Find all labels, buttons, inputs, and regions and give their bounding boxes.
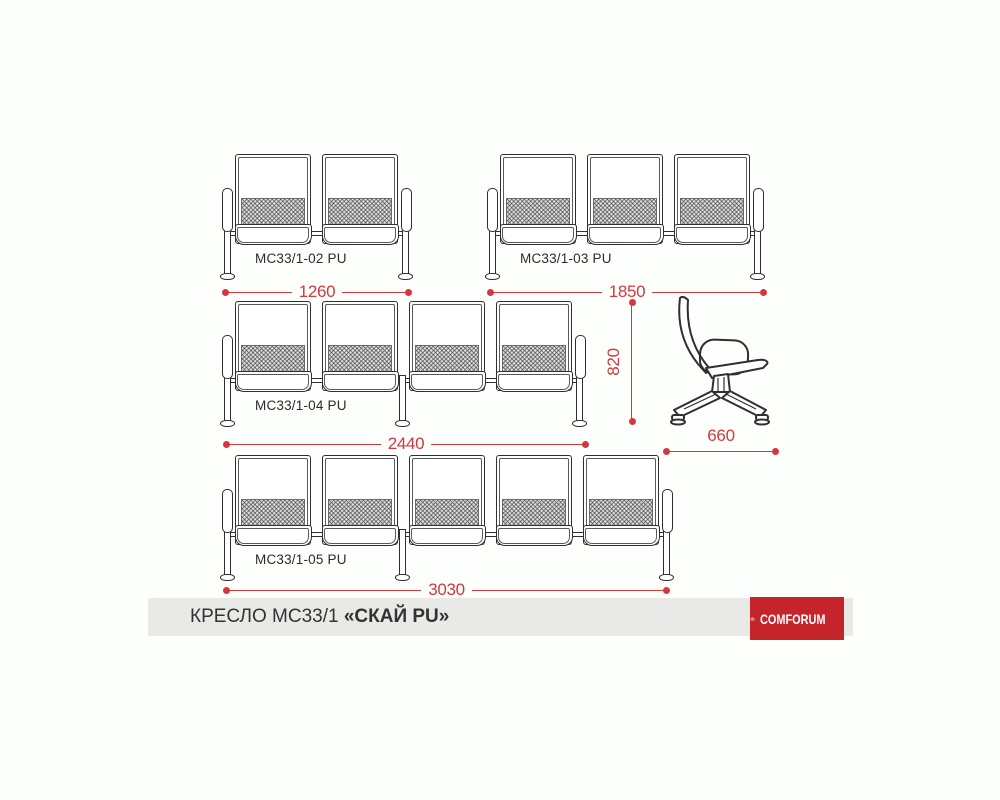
seat-front-view [496,301,572,391]
seat-front-view [322,301,398,391]
dimension-line [472,590,663,591]
bench-leg [220,529,236,583]
seat-front-view [322,455,398,545]
seat-front-view [409,455,485,545]
seat-cushion [322,224,399,245]
seat-cushion-inner-line [585,528,657,544]
dimension-endpoint-dot [629,418,636,425]
right-armrest-end [401,188,412,232]
dimension-value: 1850 [602,283,653,300]
footer-title-bar: КРЕСЛО МС33/1 «СКАЙ PU» [148,598,853,636]
seat-cushion-inner-line [324,528,396,544]
dimension-endpoint-dot [772,448,779,455]
seat-mesh-band [680,198,744,226]
seat-front-view [235,455,311,545]
seat-front-view [496,455,572,545]
bench-leg-foot [750,273,765,280]
left-armrest-end [222,188,233,232]
seat-cushion-inner-line [411,374,483,390]
seat-cushion [496,525,573,546]
seat-mesh-band [589,499,653,527]
dimension-line [494,292,602,293]
seat-mesh-band [241,345,305,373]
bench-leg-post [399,529,406,577]
dimension-value: 2440 [381,435,432,452]
dimension-value: 1260 [292,283,343,300]
bench-leg-post [224,529,231,577]
bench-leg [220,228,236,282]
seat-front-view [583,455,659,545]
seat-cushion-inner-line [324,374,396,390]
seat-front-view [235,154,311,244]
bench-leg [220,375,236,429]
product-title-accent: «СКАЙ PU» [344,606,450,627]
bench-leg-foot [659,574,674,581]
left-armrest-end [487,188,498,232]
seat-front-view [674,154,750,244]
dimension-endpoint-dot [582,441,589,448]
bench-3-seater-drawing: MC33/1-03 PU [487,154,764,284]
bench-leg-post [224,375,231,423]
seat-cushion-inner-line [237,227,309,243]
chair-right-foot-base [755,420,769,425]
dimension-endpoint-dot [663,448,670,455]
bench-model-label: MC33/1-03 PU [520,251,612,266]
dimension-endpoint-dot [487,289,494,296]
bench-leg [572,375,588,429]
brand-logo: COMFORUM [750,597,844,640]
bench-leg-foot [395,574,410,581]
chair-backrest [679,297,710,373]
dimension-value: 820 [604,348,624,375]
chair-left-foot-base [671,420,685,425]
seat-cushion [674,224,751,245]
seat-cushion-inner-line [411,528,483,544]
chair-side-view-drawing [664,296,776,428]
dimension-line-row [663,448,779,455]
dimension-line [652,292,760,293]
dimension-endpoint-dot [223,587,230,594]
bench-leg-post [399,375,406,423]
dimension-line [631,302,632,422]
seat-cushion-inner-line [589,227,661,243]
seat-mesh-band [328,499,392,527]
left-armrest-end [222,335,233,379]
bench-2-seater-drawing: MC33/1-02 PU [222,154,412,284]
bench-leg-post [576,375,583,423]
right-armrest-end [575,335,586,379]
bench-model-label: MC33/1-05 PU [255,552,347,567]
bench-leg [398,228,414,282]
dimension-line [230,590,421,591]
seat-cushion-inner-line [676,227,748,243]
dimension-endpoint-dot [222,289,229,296]
comforum-arch-icon [750,610,755,628]
right-armrest-end [662,489,673,533]
dimension-width-4-seater: 2440 [223,435,589,453]
seat-cushion-inner-line [237,528,309,544]
bench-5-seater-drawing: MC33/1-05 PU [222,455,673,585]
seat-front-view [500,154,576,244]
seat-mesh-band [502,499,566,527]
bench-leg [659,529,675,583]
product-title-text: КРЕСЛО МС33/1 [190,606,339,627]
seat-cushion [322,371,399,392]
bench-leg-foot [220,273,235,280]
seat-cushion-inner-line [324,227,396,243]
seat-front-view [322,154,398,244]
bench-leg-foot [485,273,500,280]
bench-leg-foot [398,273,413,280]
seat-cushion [235,371,312,392]
dimension-line [431,444,582,445]
seat-front-view [587,154,663,244]
seat-cushion [409,525,486,546]
dimension-value: 3030 [421,581,472,598]
seat-mesh-band [593,198,657,226]
seat-cushion [235,525,312,546]
seat-front-view [409,301,485,391]
dimension-depth-side-view: 660 [663,427,779,455]
seat-cushion [496,371,573,392]
seat-mesh-band [328,198,392,226]
seat-cushion-inner-line [498,374,570,390]
product-title: КРЕСЛО МС33/1 «СКАЙ PU» [190,598,449,636]
seat-cushion [587,224,664,245]
dimension-width-2-seater: 1260 [222,283,412,301]
dimension-endpoint-dot [760,289,767,296]
bench-model-label: MC33/1-04 PU [255,398,347,413]
dimension-line [342,292,405,293]
bench-leg-foot [220,574,235,581]
seat-mesh-band [415,345,479,373]
dimension-endpoint-dot [405,289,412,296]
right-armrest-end [753,188,764,232]
bench-4-seater-drawing: MC33/1-04 PU [222,301,586,431]
dimension-value: 660 [707,427,734,444]
seat-cushion [235,224,312,245]
left-armrest-end [222,489,233,533]
dimension-endpoint-dot [223,441,230,448]
seat-cushion-inner-line [502,227,574,243]
seat-mesh-band [328,345,392,373]
bench-leg-post [663,529,670,577]
seat-cushion-inner-line [498,528,570,544]
seat-mesh-band [241,499,305,527]
seat-cushion [322,525,399,546]
brand-name: COMFORUM [760,611,826,627]
bench-leg-foot [220,420,235,427]
seat-mesh-band [241,198,305,226]
bench-leg-post [754,228,761,276]
dimension-line [230,444,381,445]
bench-leg-foot [395,420,410,427]
dimension-width-5-seater: 3030 [223,581,670,599]
bench-model-label: MC33/1-02 PU [255,251,347,266]
seat-cushion-inner-line [237,374,309,390]
dimension-endpoint-dot [663,587,670,594]
bench-leg [485,228,501,282]
seat-cushion [500,224,577,245]
dimension-height-side-view: 820 [628,299,636,425]
seat-mesh-band [415,499,479,527]
seat-mesh-band [502,345,566,373]
bench-leg-post [489,228,496,276]
seat-mesh-band [506,198,570,226]
bench-leg-post [402,228,409,276]
chair-pedestal [712,374,730,392]
bench-leg-post [224,228,231,276]
bench-leg [750,228,766,282]
bench-leg-foot [572,420,587,427]
technical-drawing-canvas: MC33/1-02 PU MC33/1-03 PU MC33/1-04 PU M… [0,0,1000,800]
seat-front-view [235,301,311,391]
seat-cushion [409,371,486,392]
dimension-line [229,292,292,293]
seat-cushion [583,525,660,546]
dimension-line [670,451,772,452]
